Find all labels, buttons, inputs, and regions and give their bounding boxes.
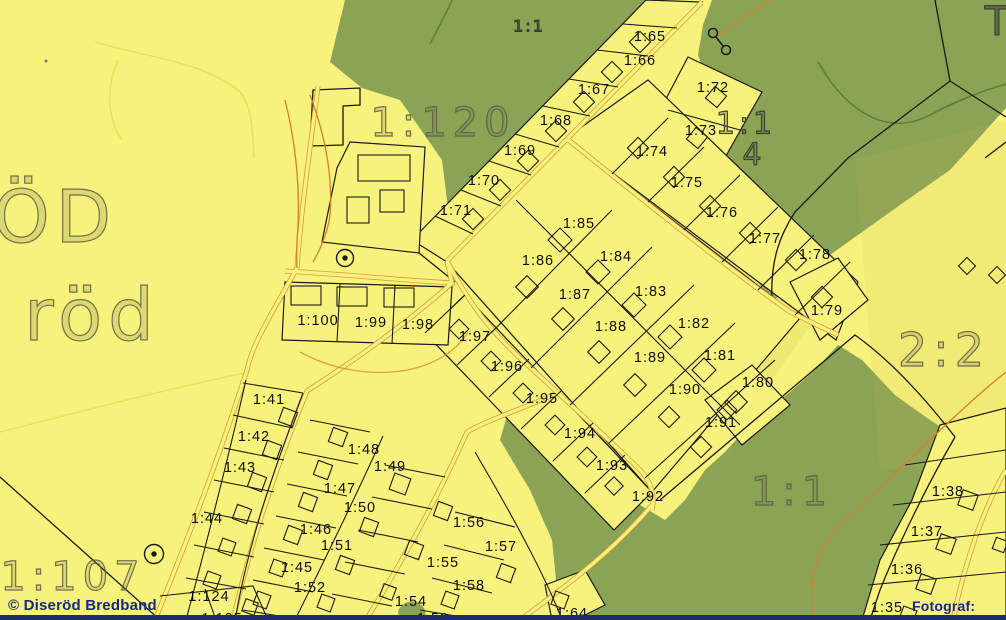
map-graphics bbox=[0, 0, 1006, 620]
map-dot bbox=[45, 60, 48, 63]
window-edge-strip bbox=[0, 615, 1006, 620]
watermark: © Diseröd Bredband bbox=[8, 597, 157, 614]
map-canvas[interactable]: 1:651:661:671:681:691:701:711:721:731:74… bbox=[0, 0, 1006, 620]
